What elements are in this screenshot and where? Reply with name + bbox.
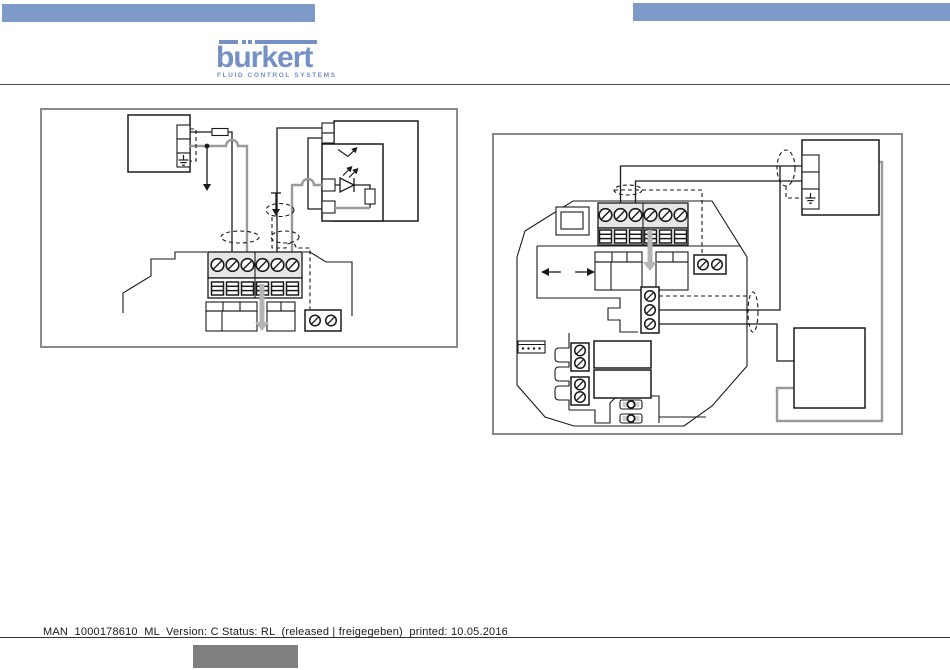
header-bar-left: [2, 4, 315, 22]
fuse-elements: [620, 400, 642, 423]
wiring-diagram-panel-mount: [40, 108, 458, 348]
power-supply-box: [802, 140, 879, 215]
solenoid-valve-box: [322, 121, 418, 221]
terminal-strip: [208, 252, 302, 298]
binary-input-terminal-block: [641, 287, 659, 333]
footer-status-line: MAN 1000178610 ML Version: C Status: RL …: [43, 626, 508, 638]
manual-page: burkert FLUID CONTROL SYSTEMS: [0, 0, 950, 670]
header-bar-right: [633, 3, 950, 21]
wiring-diagram-housing: [492, 133, 903, 435]
power-supply-box: [128, 115, 190, 172]
shield-terminal-box: [305, 310, 341, 331]
header-divider: [0, 84, 950, 85]
supply-wires: [190, 129, 247, 254]
terminal-label-table: [206, 302, 295, 331]
logo-wordmark: burkert: [216, 43, 312, 73]
shield-terminal-box: [694, 255, 726, 274]
down-arrow: [272, 209, 280, 216]
cable-shield-ellipses: [221, 204, 299, 244]
logo-tagline: FLUID CONTROL SYSTEMS: [217, 72, 337, 79]
relay-boxes: [594, 341, 651, 398]
down-arrow: [203, 184, 211, 191]
direction-arrows-icon: [541, 268, 595, 276]
terminal-label-table: [595, 252, 688, 290]
relay-terminal-blocks: [571, 343, 589, 405]
resistor-icon: [365, 189, 375, 204]
terminal-strip: [598, 203, 688, 245]
display-window: [556, 207, 589, 235]
fuse-icon: [212, 129, 228, 136]
pin-connector-icon: [518, 341, 545, 353]
switch-box: [794, 328, 865, 408]
footer-redaction-box: [193, 645, 298, 668]
